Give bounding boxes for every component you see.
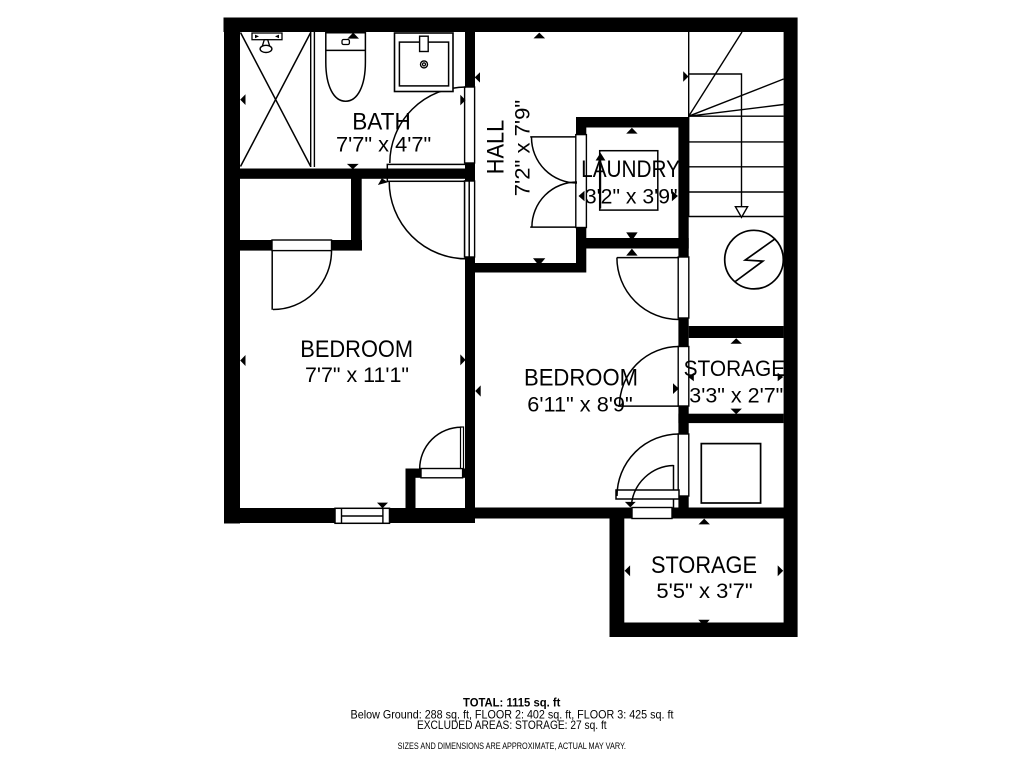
svg-text:SIZES AND DIMENSIONS ARE APPRO: SIZES AND DIMENSIONS ARE APPROXIMATE, AC…: [398, 741, 626, 752]
svg-text:BATH: BATH: [352, 109, 411, 136]
svg-text:BEDROOM: BEDROOM: [300, 336, 413, 363]
svg-text:BEDROOM: BEDROOM: [524, 365, 638, 392]
svg-text:7'2" x 7'9": 7'2" x 7'9": [512, 100, 535, 197]
svg-text:6'11" x 8'9": 6'11" x 8'9": [527, 392, 633, 416]
svg-text:STORAGE: STORAGE: [651, 552, 757, 579]
svg-text:EXCLUDED AREAS: STORAGE: 27 sq: EXCLUDED AREAS: STORAGE: 27 sq. ft: [417, 718, 607, 732]
svg-text:HALL: HALL: [483, 120, 510, 174]
svg-text:5'5" x 3'7": 5'5" x 3'7": [656, 579, 752, 603]
svg-text:3'3" x 2'7": 3'3" x 2'7": [689, 385, 783, 408]
svg-text:7'7" x 4'7": 7'7" x 4'7": [336, 134, 431, 157]
svg-text:LAUNDRY: LAUNDRY: [581, 156, 680, 183]
svg-text:7'7" x 11'1": 7'7" x 11'1": [305, 363, 409, 387]
svg-text:STORAGE: STORAGE: [684, 356, 786, 381]
svg-text:3'2" x 3'9": 3'2" x 3'9": [585, 186, 678, 209]
